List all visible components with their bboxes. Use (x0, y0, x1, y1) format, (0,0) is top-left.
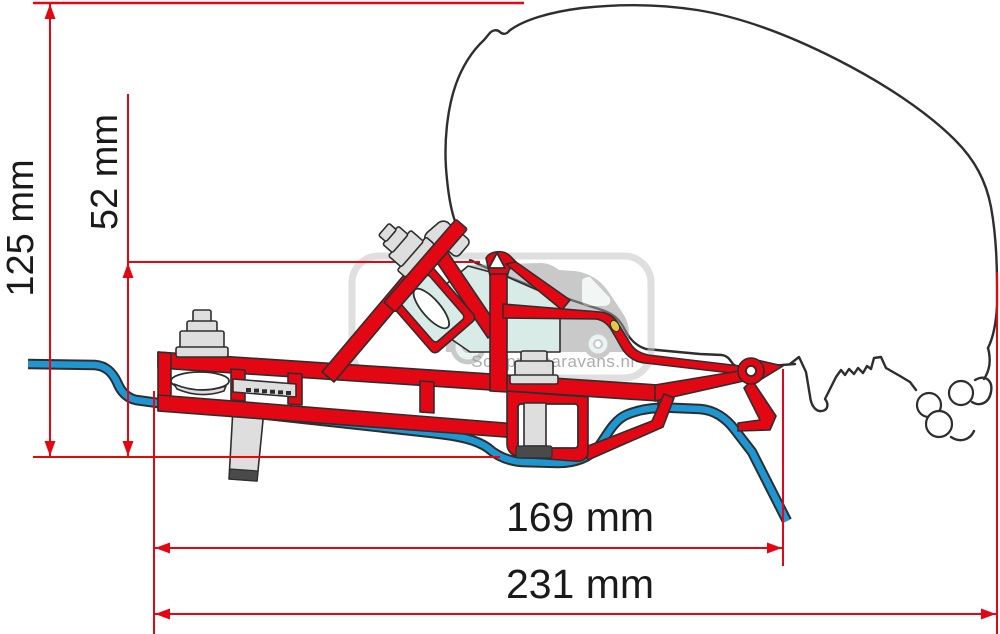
rail-strut-c (420, 381, 434, 413)
awning-adapter-dimension-diagram: Schippercaravans.nl (0, 0, 1000, 634)
dim-125-arrow-up (45, 4, 56, 19)
dim-52-arrow-down (123, 441, 134, 456)
dim-169-arrow-right (767, 543, 782, 554)
strap-foot (229, 469, 258, 481)
dim-231-arrow-left (155, 609, 170, 620)
middle-bolt-shaft (524, 403, 546, 446)
dimension-width-231: 231 mm (155, 561, 996, 620)
rail-bottom-bar (158, 395, 543, 442)
diagram-stage: Schippercaravans.nl (0, 0, 1000, 634)
gutter-tube-3 (926, 411, 952, 437)
dimension-height-125: 125 mm (0, 4, 56, 456)
dim-169-label: 169 mm (506, 494, 654, 540)
dimension-width-169: 169 mm (155, 494, 782, 554)
fork-claw-hole (746, 366, 756, 376)
gutter-curl-right (972, 378, 991, 404)
dim-125-label: 125 mm (0, 159, 42, 296)
left-bolt-washer (176, 347, 228, 357)
middle-washer (510, 375, 558, 384)
gutter-edge-right (984, 348, 990, 379)
dim-231-label: 231 mm (506, 561, 654, 607)
dim-169-arrow-left (155, 543, 170, 554)
middle-bolt-head (516, 446, 552, 458)
dim-125-arrow-down (45, 441, 56, 456)
dimension-roof-52: 52 mm (84, 94, 134, 456)
fork-stub (738, 380, 776, 431)
vertical-strut (490, 274, 507, 392)
gutter-tube-2 (949, 381, 973, 405)
gutter-curl-bottom (951, 431, 974, 440)
roof-gutter-profile (790, 357, 916, 411)
dim-52-arrow-up (123, 263, 134, 278)
mounting-bolt-left (176, 310, 228, 357)
watermark-wheel-right-hub (594, 340, 602, 348)
lower-strip (583, 394, 674, 460)
dim-52-label: 52 mm (84, 114, 126, 230)
dim-231-arrow-right (981, 609, 996, 620)
